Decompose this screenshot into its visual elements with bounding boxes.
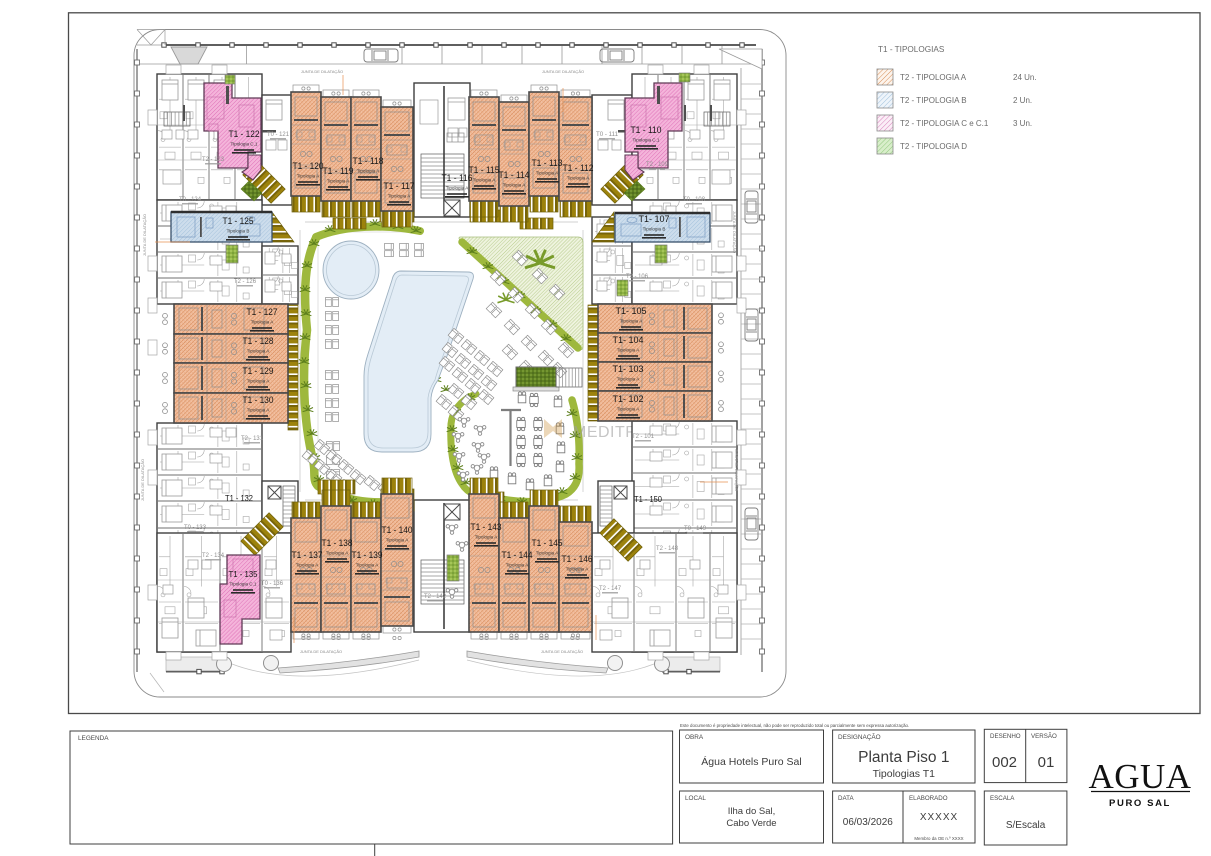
svg-text:T1 - 138: T1 - 138	[322, 538, 353, 548]
svg-text:T2 - TIPOLOGIA A: T2 - TIPOLOGIA A	[900, 73, 967, 82]
svg-text:01: 01	[1038, 754, 1055, 771]
svg-text:T1 - 140: T1 - 140	[382, 525, 413, 535]
svg-text:T1 - 115: T1 - 115	[469, 165, 500, 175]
svg-text:Tipologia A: Tipologia A	[357, 169, 380, 174]
svg-text:T0 - 108: T0 - 108	[683, 196, 705, 203]
svg-text:Tipologia A: Tipologia A	[247, 379, 270, 384]
svg-text:Tipologia A: Tipologia A	[327, 179, 350, 184]
svg-text:Tipologia A: Tipologia A	[617, 407, 640, 412]
svg-text:T2 - 131: T2 - 131	[241, 435, 263, 442]
svg-text:ELABORADO: ELABORADO	[909, 795, 948, 802]
svg-text:ESCALA: ESCALA	[990, 795, 1015, 802]
svg-text:T2 - TIPOLOGIA B: T2 - TIPOLOGIA B	[900, 96, 967, 105]
svg-text:Tipologia A: Tipologia A	[296, 563, 319, 568]
svg-text:Tipologia A: Tipologia A	[247, 349, 270, 354]
svg-text:XXXXX: XXXXX	[920, 812, 958, 823]
svg-text:JUNTA DE DILATAÇÃO: JUNTA DE DILATAÇÃO	[300, 649, 342, 654]
svg-text:T1 - 122: T1 - 122	[229, 129, 260, 139]
svg-text:T1 - 144: T1 - 144	[502, 550, 533, 560]
svg-text:T2 - TIPOLOGIA D: T2 - TIPOLOGIA D	[900, 142, 967, 151]
svg-text:T0 - 111: T0 - 111	[596, 131, 618, 138]
svg-text:JUNTA DE DILATAÇÃO: JUNTA DE DILATAÇÃO	[301, 69, 343, 74]
svg-text:T0 - 124: T0 - 124	[179, 196, 201, 203]
svg-text:T1 - 150: T1 - 150	[634, 495, 662, 504]
svg-text:T2 - 147: T2 - 147	[599, 585, 621, 592]
svg-text:Tipologia A: Tipologia A	[503, 183, 526, 188]
svg-text:T1 - 125: T1 - 125	[223, 216, 254, 226]
svg-text:Tipologia B: Tipologia B	[227, 229, 250, 234]
svg-text:T0 - 136: T0 - 136	[261, 580, 283, 587]
svg-text:Tipologia A: Tipologia A	[388, 194, 411, 199]
svg-text:T2 - 101: T2 - 101	[632, 433, 654, 440]
svg-text:T2 - 123: T2 - 123	[202, 156, 224, 163]
svg-text:T1 - 114: T1 - 114	[499, 170, 530, 180]
svg-text:T0 - 133: T0 - 133	[184, 524, 206, 531]
svg-text:Tipologia A: Tipologia A	[620, 319, 643, 324]
svg-text:Tipologia C.1: Tipologia C.1	[230, 582, 257, 587]
svg-text:Água Hotels Puro Sal: Água Hotels Puro Sal	[701, 755, 801, 768]
svg-text:JUNTA DE DILATAÇÃO: JUNTA DE DILATAÇÃO	[734, 449, 739, 491]
svg-text:T1 - 146: T1 - 146	[562, 554, 593, 564]
svg-text:T1 - 143: T1 - 143	[471, 522, 502, 532]
svg-text:Tipologia C.1: Tipologia C.1	[231, 142, 258, 147]
svg-text:Tipologia A: Tipologia A	[567, 176, 590, 181]
svg-text:Tipologia A: Tipologia A	[326, 551, 349, 556]
svg-text:DESENHO: DESENHO	[990, 733, 1021, 740]
svg-text:T1 - 118: T1 - 118	[353, 156, 384, 166]
svg-text:T1 - 137: T1 - 137	[292, 550, 323, 560]
svg-text:Tipologia A: Tipologia A	[617, 348, 640, 353]
svg-text:T1 - 128: T1 - 128	[243, 336, 274, 346]
svg-text:Tipologia A: Tipologia A	[251, 320, 274, 325]
svg-text:JUNTA DE DILATAÇÃO: JUNTA DE DILATAÇÃO	[142, 214, 147, 256]
svg-text:S/Escala: S/Escala	[1006, 820, 1046, 831]
svg-text:T1- 105: T1- 105	[616, 306, 647, 316]
svg-text:T1- 103: T1- 103	[613, 364, 644, 374]
svg-text:T1 - 117: T1 - 117	[384, 181, 415, 191]
svg-text:T1 - 119: T1 - 119	[323, 166, 354, 176]
svg-text:2 Un.: 2 Un.	[1013, 96, 1032, 105]
svg-text:PURO SAL: PURO SAL	[1109, 798, 1171, 809]
svg-text:T1 - 113: T1 - 113	[532, 158, 563, 168]
svg-text:T0 - 149: T0 - 149	[684, 525, 706, 532]
svg-text:T1 - 127: T1 - 127	[247, 307, 278, 317]
svg-text:3 Un.: 3 Un.	[1013, 119, 1032, 128]
svg-text:OBRA: OBRA	[685, 734, 704, 741]
svg-text:Tipologias T1: Tipologias T1	[873, 768, 936, 780]
svg-text:T1 - 120: T1 - 120	[293, 161, 324, 171]
svg-text:JUNTA DE DILATAÇÃO: JUNTA DE DILATAÇÃO	[542, 69, 584, 74]
svg-text:T1- 102: T1- 102	[613, 394, 644, 404]
svg-text:Cabo Verde: Cabo Verde	[726, 818, 776, 829]
svg-text:T2 - 148: T2 - 148	[656, 545, 678, 552]
svg-text:Planta Piso 1: Planta Piso 1	[858, 749, 949, 766]
svg-text:Tipologia C.1: Tipologia C.1	[633, 138, 660, 143]
svg-text:T1 - 135: T1 - 135	[229, 569, 258, 579]
svg-text:T2 - 134: T2 - 134	[202, 552, 224, 559]
svg-text:Tipologia A: Tipologia A	[356, 563, 379, 568]
svg-text:LEGENDA: LEGENDA	[78, 735, 109, 742]
svg-text:Tipologia A: Tipologia A	[617, 377, 640, 382]
svg-text:002: 002	[992, 754, 1017, 771]
svg-text:DESIGNAÇÃO: DESIGNAÇÃO	[838, 732, 881, 741]
svg-text:Tipologia A: Tipologia A	[506, 563, 529, 568]
svg-text:T1 - 110: T1 - 110	[631, 125, 662, 135]
svg-text:LOCAL: LOCAL	[685, 795, 706, 802]
svg-text:T2 - 142: T2 - 142	[424, 593, 446, 600]
svg-text:Tipologia A: Tipologia A	[297, 174, 320, 179]
svg-text:06/03/2026: 06/03/2026	[843, 817, 893, 828]
svg-text:Tipologia A: Tipologia A	[247, 408, 270, 413]
svg-text:T2 - 126: T2 - 126	[234, 278, 256, 285]
svg-text:T2 - 109: T2 - 109	[646, 161, 668, 168]
svg-text:JUNTA DE DILATAÇÃO: JUNTA DE DILATAÇÃO	[140, 459, 145, 501]
svg-text:Tipologia A: Tipologia A	[473, 178, 496, 183]
svg-text:VERSÃO: VERSÃO	[1031, 733, 1057, 740]
svg-text:T1 - 139: T1 - 139	[352, 550, 383, 560]
svg-text:T1 - 112: T1 - 112	[563, 163, 594, 173]
svg-text:T1 - 132: T1 - 132	[225, 494, 253, 503]
svg-text:24 Un.: 24 Un.	[1013, 73, 1037, 82]
svg-text:DATA: DATA	[838, 795, 854, 802]
svg-text:T1 - TIPOLOGIAS: T1 - TIPOLOGIAS	[878, 45, 945, 54]
svg-text:Tipologia A: Tipologia A	[536, 171, 559, 176]
svg-text:Membro da OE n.º XXXX: Membro da OE n.º XXXX	[914, 836, 963, 841]
svg-text:T2 - TIPOLOGIA C e C.1: T2 - TIPOLOGIA C e C.1	[900, 119, 989, 128]
svg-text:Tipologia A: Tipologia A	[566, 567, 589, 572]
svg-text:Tipologia A: Tipologia A	[386, 538, 409, 543]
svg-text:T1- 104: T1- 104	[613, 335, 644, 345]
svg-text:T2 - 106: T2 - 106	[626, 273, 648, 280]
svg-text:Tipologia A: Tipologia A	[446, 186, 469, 191]
svg-text:Tipologia B: Tipologia B	[643, 227, 666, 232]
svg-text:T1 - 145: T1 - 145	[532, 538, 563, 548]
svg-text:T1 - 130: T1 - 130	[243, 395, 274, 405]
svg-text:T0 - 121: T0 - 121	[267, 131, 289, 138]
svg-text:Tipologia A: Tipologia A	[475, 535, 498, 540]
svg-text:T1 - 129: T1 - 129	[243, 366, 274, 376]
svg-text:AGUA: AGUA	[1088, 757, 1191, 796]
svg-text:Tipologia A: Tipologia A	[536, 551, 559, 556]
svg-text:Ilha do Sal,: Ilha do Sal,	[728, 806, 776, 817]
svg-text:Este documento é propriedade i: Este documento é propriedade intelectual…	[680, 723, 909, 728]
svg-text:JUNTA DE DILATAÇÃO: JUNTA DE DILATAÇÃO	[732, 211, 737, 253]
svg-text:T1- 107: T1- 107	[639, 214, 670, 224]
svg-text:JUNTA DE DILATAÇÃO: JUNTA DE DILATAÇÃO	[541, 649, 583, 654]
